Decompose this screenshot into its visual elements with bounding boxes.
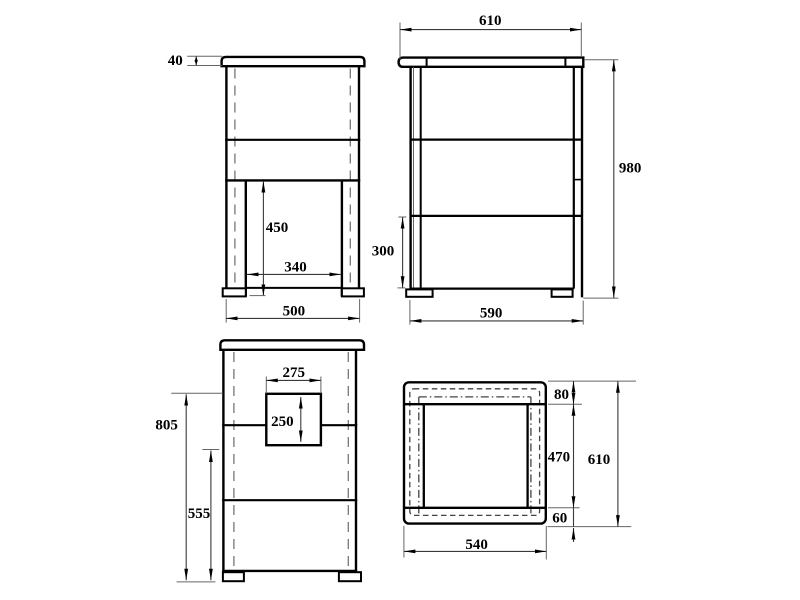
svg-text:80: 80 — [554, 387, 569, 403]
svg-text:805: 805 — [155, 418, 178, 434]
svg-text:470: 470 — [548, 449, 571, 465]
svg-text:60: 60 — [552, 510, 567, 526]
svg-text:610: 610 — [479, 13, 502, 29]
svg-text:610: 610 — [588, 452, 611, 468]
svg-text:450: 450 — [266, 220, 289, 236]
svg-text:590: 590 — [480, 305, 503, 321]
svg-text:500: 500 — [283, 304, 306, 320]
svg-text:980: 980 — [619, 161, 642, 177]
svg-text:300: 300 — [372, 243, 395, 259]
svg-text:340: 340 — [284, 259, 307, 275]
svg-text:555: 555 — [188, 506, 211, 522]
svg-text:275: 275 — [283, 365, 306, 381]
svg-text:250: 250 — [271, 414, 294, 430]
svg-text:40: 40 — [168, 53, 183, 69]
svg-text:540: 540 — [465, 537, 488, 553]
